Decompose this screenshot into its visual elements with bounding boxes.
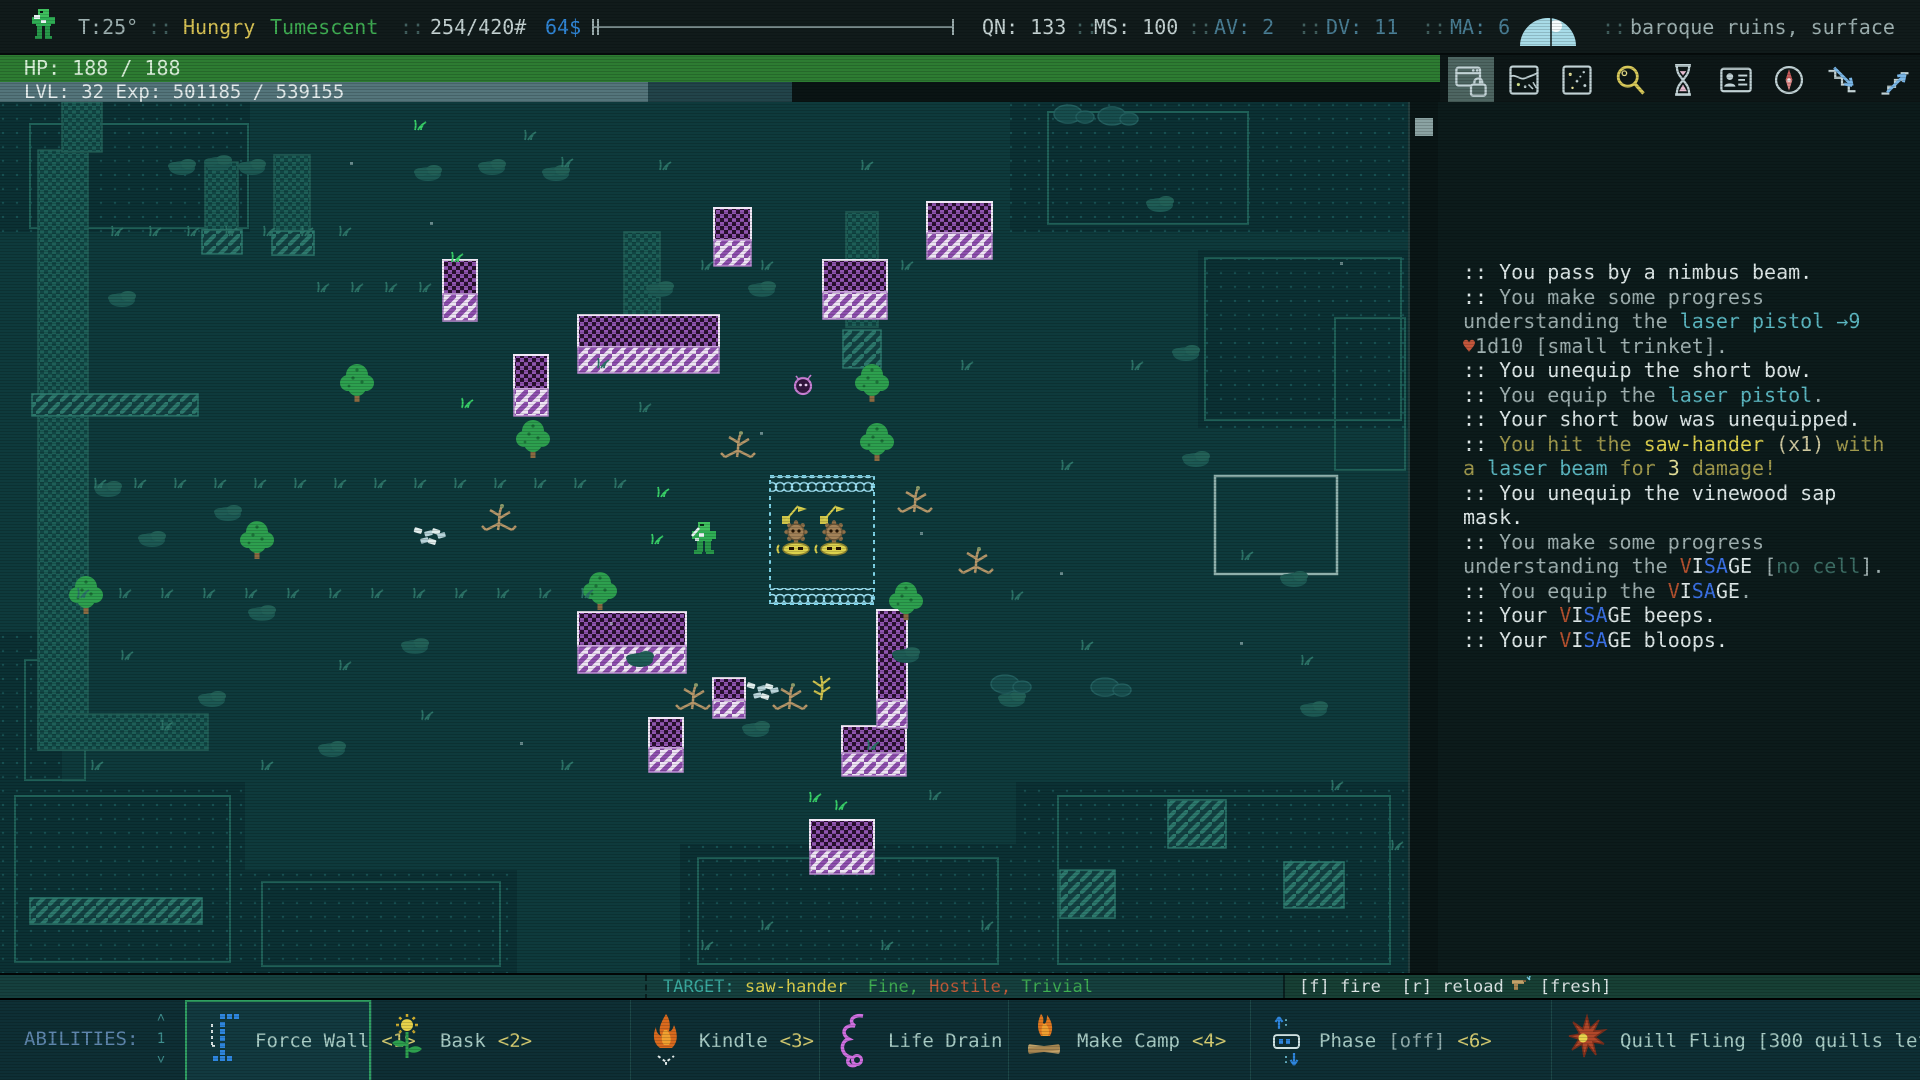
ability-label: Quill Fling [300 quills left] xyxy=(1620,1030,1920,1052)
carry-weight: 254/420# xyxy=(430,0,526,55)
money: 64$ xyxy=(545,0,581,55)
unexplored-zone xyxy=(0,782,245,973)
baroque-ruin-wall[interactable] xyxy=(842,726,906,776)
toolbar-wait-button[interactable] xyxy=(1660,57,1706,102)
weather-moon-icon xyxy=(1516,8,1580,48)
target-segment xyxy=(919,977,929,997)
separator-icon: :: xyxy=(1188,0,1212,55)
ability-hotkey: <6> xyxy=(1457,1030,1491,1052)
ruin-wall-dim xyxy=(274,155,310,231)
separator-icon: :: xyxy=(148,0,172,55)
temperature: T:25° xyxy=(78,0,138,55)
quill-fling-icon xyxy=(1566,1012,1608,1070)
ability-label: Force Wall xyxy=(255,1030,369,1052)
stairs-down-icon xyxy=(1824,62,1860,98)
ability-label: Life Drain xyxy=(888,1030,1002,1052)
ruin-wall-dim xyxy=(38,150,88,750)
kindle-icon xyxy=(645,1012,687,1070)
ruin-wall-face-dim xyxy=(1060,870,1115,918)
unexplored-zone xyxy=(1198,250,1408,428)
status-hungry: Hungry xyxy=(183,0,255,55)
toolbar-world-map-button[interactable] xyxy=(1501,57,1547,102)
baroque-ruin-wall[interactable] xyxy=(810,820,874,874)
wait-icon xyxy=(1665,62,1701,98)
target-segment: Trivial xyxy=(1021,977,1093,997)
dodge-value: DV: 11 xyxy=(1326,0,1398,55)
ability-force-wall-button[interactable]: Force Wall<1> xyxy=(185,1000,371,1080)
target-segment xyxy=(847,977,867,997)
quickness: QN: 133 xyxy=(982,0,1066,55)
ability-label: Bask xyxy=(440,1030,486,1052)
fire-reload-hint[interactable]: [f] fire [r] reload xyxy=(1299,975,1504,1000)
baroque-ruin-wall[interactable] xyxy=(649,718,683,772)
log-line: :: You hit the saw-hander (x1) with xyxy=(1463,432,1904,457)
starfield-icon xyxy=(1559,62,1595,98)
purple-critter[interactable] xyxy=(795,375,811,394)
ruin-wall-face-dim xyxy=(32,394,198,416)
top-status-bar: T:25°::HungryTumescent::254/420#64$QN: 1… xyxy=(0,0,1920,55)
log-line: :: You make some progress xyxy=(1463,285,1904,310)
ability-hotkey: <4> xyxy=(1192,1030,1226,1052)
abilities-label: ABILITIES: xyxy=(24,1000,138,1078)
level-exp-bar: LVL: 32 Exp: 501185 / 539155 xyxy=(0,82,792,102)
fire-controls: [f] fire [r] reload [fresh] xyxy=(1283,975,1920,1000)
log-line: :: You unequip the short bow. xyxy=(1463,358,1904,383)
log-line: :: Your short bow was unequipped. xyxy=(1463,407,1904,432)
ability-bask-button[interactable]: Bask<2> xyxy=(371,1000,630,1080)
target-segment: saw-hander xyxy=(745,977,847,997)
target-segment: Hostile, xyxy=(929,977,1011,997)
ability-mod: [off] xyxy=(1388,1030,1445,1052)
toolbar-inspect-button[interactable] xyxy=(1607,57,1653,102)
separator-icon: :: xyxy=(1602,0,1626,55)
force-wall-icon xyxy=(201,1012,243,1070)
ability-hotkey: <3> xyxy=(780,1030,814,1052)
baroque-ruin-wall[interactable] xyxy=(877,610,907,728)
location: baroque ruins, surface xyxy=(1630,0,1895,55)
abilities-bar: ABILITIES: ˄ 1 ˅ Force Wall<1>Bask<2>Kin… xyxy=(0,998,1920,1080)
baroque-ruin-wall[interactable] xyxy=(443,260,477,321)
ammo-fresh-label: [fresh] xyxy=(1540,975,1612,1000)
game-map[interactable] xyxy=(0,102,1408,973)
ruin-wall-face-dim xyxy=(843,330,881,368)
abilities-header: ABILITIES: ˄ 1 ˅ xyxy=(0,1000,185,1080)
ruin-wall-face-dim xyxy=(1284,862,1344,908)
log-line: :: Your VISAGE bloops. xyxy=(1463,628,1904,653)
level-exp-text: LVL: 32 Exp: 501185 / 539155 xyxy=(24,82,344,102)
log-scrollbar[interactable] xyxy=(1408,102,1438,973)
ability-quill-fling-button[interactable]: Quill Fling [300 quills left]<7> xyxy=(1551,1000,1920,1080)
ruin-wall-face-dim xyxy=(30,898,202,924)
log-line: ♥1d10 [small trinket]. xyxy=(1463,334,1904,359)
ability-life-drain-button[interactable]: Life Drain xyxy=(819,1000,1008,1080)
hp-bar: HP: 188 / 188 xyxy=(0,55,1440,82)
toolbar-stairs-down-button[interactable] xyxy=(1819,57,1865,102)
toolbar-starfield-button[interactable] xyxy=(1554,57,1600,102)
stairs-up-icon xyxy=(1877,62,1913,98)
ability-label: Make Camp xyxy=(1077,1030,1180,1052)
baroque-ruin-wall[interactable] xyxy=(927,202,992,259)
armor-value: AV: 2 xyxy=(1214,0,1274,55)
character-sheet-icon xyxy=(1718,62,1754,98)
log-line: a laser beam for 3 damage! xyxy=(1463,456,1904,481)
log-line: :: You equip the laser pistol. xyxy=(1463,383,1904,408)
ruin-wall-face-dim xyxy=(202,230,242,254)
make-camp-icon xyxy=(1023,1012,1065,1070)
pager-up-icon[interactable]: ˄ xyxy=(150,1008,172,1029)
compass-icon xyxy=(1771,62,1807,98)
abilities-pager: ˄ 1 ˅ xyxy=(150,1008,172,1071)
pistol-icon xyxy=(1512,975,1532,1000)
toolbar-ui-lock-button[interactable] xyxy=(1448,57,1494,102)
status-tumescent: Tumescent xyxy=(270,0,378,55)
toolbar-character-sheet-button[interactable] xyxy=(1713,57,1759,102)
toolbar-compass-button[interactable] xyxy=(1766,57,1812,102)
log-line: :: You make some progress xyxy=(1463,530,1904,555)
log-line: :: You equip the VISAGE. xyxy=(1463,579,1904,604)
pager-page-number: 1 xyxy=(150,1029,172,1050)
ability-phase-button[interactable]: Phase[off]<6> xyxy=(1250,1000,1551,1080)
baroque-ruin-wall[interactable] xyxy=(823,260,887,319)
ruin-wall-dim xyxy=(205,162,238,230)
ability-label: Phase xyxy=(1319,1030,1376,1052)
ability-make-camp-button[interactable]: Make Camp<4> xyxy=(1008,1000,1250,1080)
log-line: understanding the VISAGE [no cell]. xyxy=(1463,554,1904,579)
toolbar-stairs-up-button[interactable] xyxy=(1872,57,1918,102)
log-line: :: You pass by a nimbus beam. xyxy=(1463,260,1904,285)
life-drain-icon xyxy=(834,1012,876,1070)
player-sprite-icon xyxy=(28,7,58,62)
mental-armor: MA: 6 xyxy=(1450,0,1510,55)
baroque-ruin-wall[interactable] xyxy=(713,678,745,718)
target-segment xyxy=(1011,977,1021,997)
move-speed: MS: 100 xyxy=(1094,0,1178,55)
world-map-icon xyxy=(1506,62,1542,98)
target-segment: Fine, xyxy=(868,977,919,997)
separator-icon: :: xyxy=(1298,0,1322,55)
toolbar xyxy=(1448,57,1918,102)
top-progress-bar xyxy=(592,19,954,35)
phase-icon xyxy=(1265,1012,1307,1070)
active-effects: ACTIVE EFFECTS: xyxy=(0,975,645,1000)
ruin-wall-face-dim xyxy=(1168,800,1226,848)
baroque-ruin-wall[interactable] xyxy=(714,208,751,266)
log-line: :: You unequip the vinewood sap xyxy=(1463,481,1904,506)
ability-kindle-button[interactable]: Kindle<3> xyxy=(630,1000,819,1080)
log-scrollbar-thumb[interactable] xyxy=(1415,118,1433,136)
baroque-ruin-wall[interactable] xyxy=(514,355,548,416)
target-segment: TARGET: xyxy=(663,977,745,997)
separator-icon: :: xyxy=(400,0,424,55)
log-line: mask. xyxy=(1463,505,1904,530)
log-line: :: Your VISAGE beeps. xyxy=(1463,603,1904,628)
ui-lock-icon xyxy=(1453,62,1489,98)
hp-text: HP: 188 / 188 xyxy=(24,56,181,80)
ability-label: Kindle xyxy=(699,1030,768,1052)
bask-icon xyxy=(386,1012,428,1070)
ability-hotkey: <2> xyxy=(498,1030,532,1052)
pager-down-icon[interactable]: ˅ xyxy=(150,1050,172,1071)
player-sprite-icon xyxy=(28,7,58,49)
message-log[interactable]: :: You pass by a nimbus beam.:: You make… xyxy=(1438,102,1920,973)
target-info: TARGET: saw-hander Fine, Hostile, Trivia… xyxy=(645,975,1283,1000)
ruin-wall-dim xyxy=(62,102,102,152)
inspect-icon xyxy=(1612,62,1648,98)
unexplored-zone xyxy=(245,870,517,973)
log-line: understanding the laser pistol →9 xyxy=(1463,309,1904,334)
ruin-wall-dim xyxy=(38,714,208,750)
separator-icon: :: xyxy=(1422,0,1446,55)
game-screen: T:25°::HungryTumescent::254/420#64$QN: 1… xyxy=(0,0,1920,1080)
bottom-status-bar: ACTIVE EFFECTS: TARGET: saw-hander Fine,… xyxy=(0,973,1920,998)
ruin-wall-dim xyxy=(624,232,660,322)
